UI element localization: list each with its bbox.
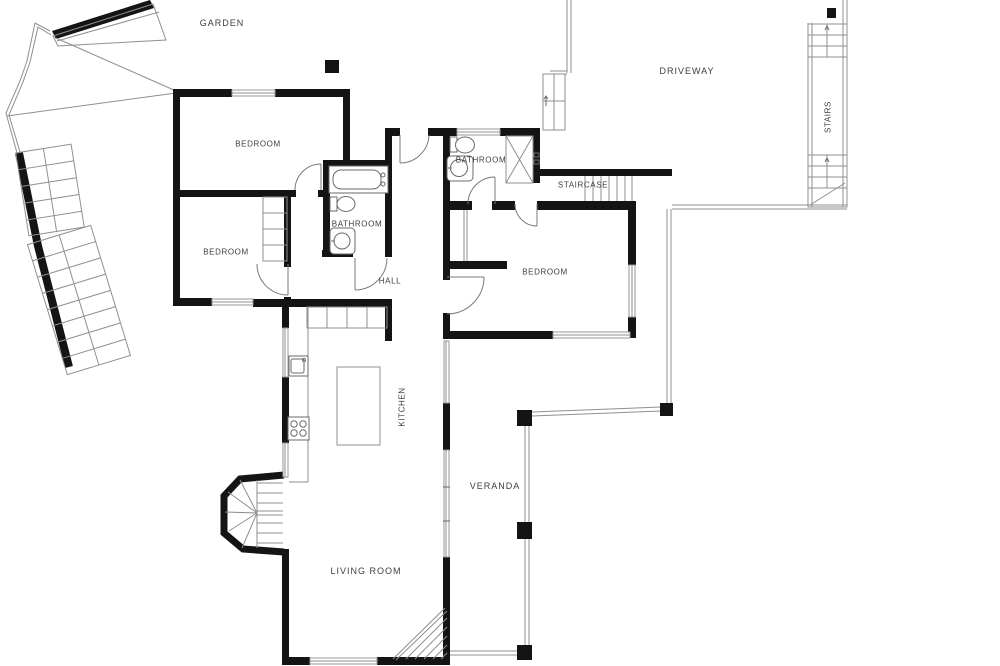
garden-stairs-lower [28,225,131,374]
label-garden: GARDEN [200,18,245,28]
veranda-rails [450,205,847,660]
label-kitchen: KITCHEN [398,387,407,426]
label-stairs: STAIRS [824,101,833,133]
stove [288,417,309,440]
driveway-boundary [550,0,571,74]
label-bedroom-left: BEDROOM [203,248,249,257]
kitchen-fixtures [288,307,387,482]
label-veranda: VERANDA [470,481,521,491]
label-bedroom-right: BEDROOM [522,268,568,277]
windows [212,90,635,664]
veranda-post [517,645,532,660]
garden-walls [6,0,339,367]
kitchen-island [337,367,380,445]
bathroom-left-fixtures [329,166,388,254]
veranda-post [660,403,673,416]
closet-bedroom-left [263,197,287,261]
veranda-post [517,410,532,426]
label-driveway: DRIVEWAY [659,66,714,76]
label-bathroom-left: BATHROOM [332,220,382,229]
label-hall: HALL [379,277,401,286]
label-living-room: LIVING ROOM [330,566,401,576]
house-walls [173,89,672,665]
corner-fireplace [393,608,447,660]
label-staircase: STAIRCASE [558,181,608,190]
label-bedroom-top: BEDROOM [235,140,281,149]
floor-plan: GARDEN DRIVEWAY STAIRS BEDROOM BEDROOM B… [0,0,1000,666]
label-bathroom-right: BATHROOM [456,156,506,165]
floorplan-drawing [0,0,1000,666]
veranda-post [517,522,532,539]
toilet [330,197,337,211]
closet-bedroom-right [464,210,467,261]
entry-steps [543,74,565,130]
